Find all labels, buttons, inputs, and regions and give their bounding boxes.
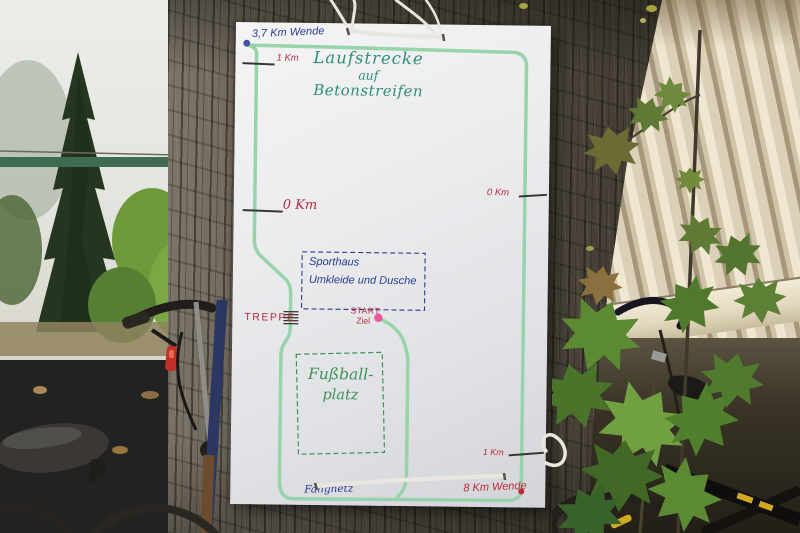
cord-strand <box>396 0 438 38</box>
cord-holes <box>315 28 505 490</box>
plant-leaf <box>671 208 729 263</box>
plant-leaf <box>675 167 705 193</box>
plant-leaf <box>732 275 789 326</box>
cord-top-threaded <box>352 31 440 37</box>
plant-leaf <box>580 121 645 180</box>
cord-strand <box>331 0 350 32</box>
cord-bottom-threaded <box>318 476 502 486</box>
photo-scene: 3,7 Km Wende 1 Km Laufstrecke auf Betons… <box>0 0 800 533</box>
climbing-plant <box>552 0 800 533</box>
plant-leaf <box>708 227 769 284</box>
cord-strand <box>352 0 355 32</box>
